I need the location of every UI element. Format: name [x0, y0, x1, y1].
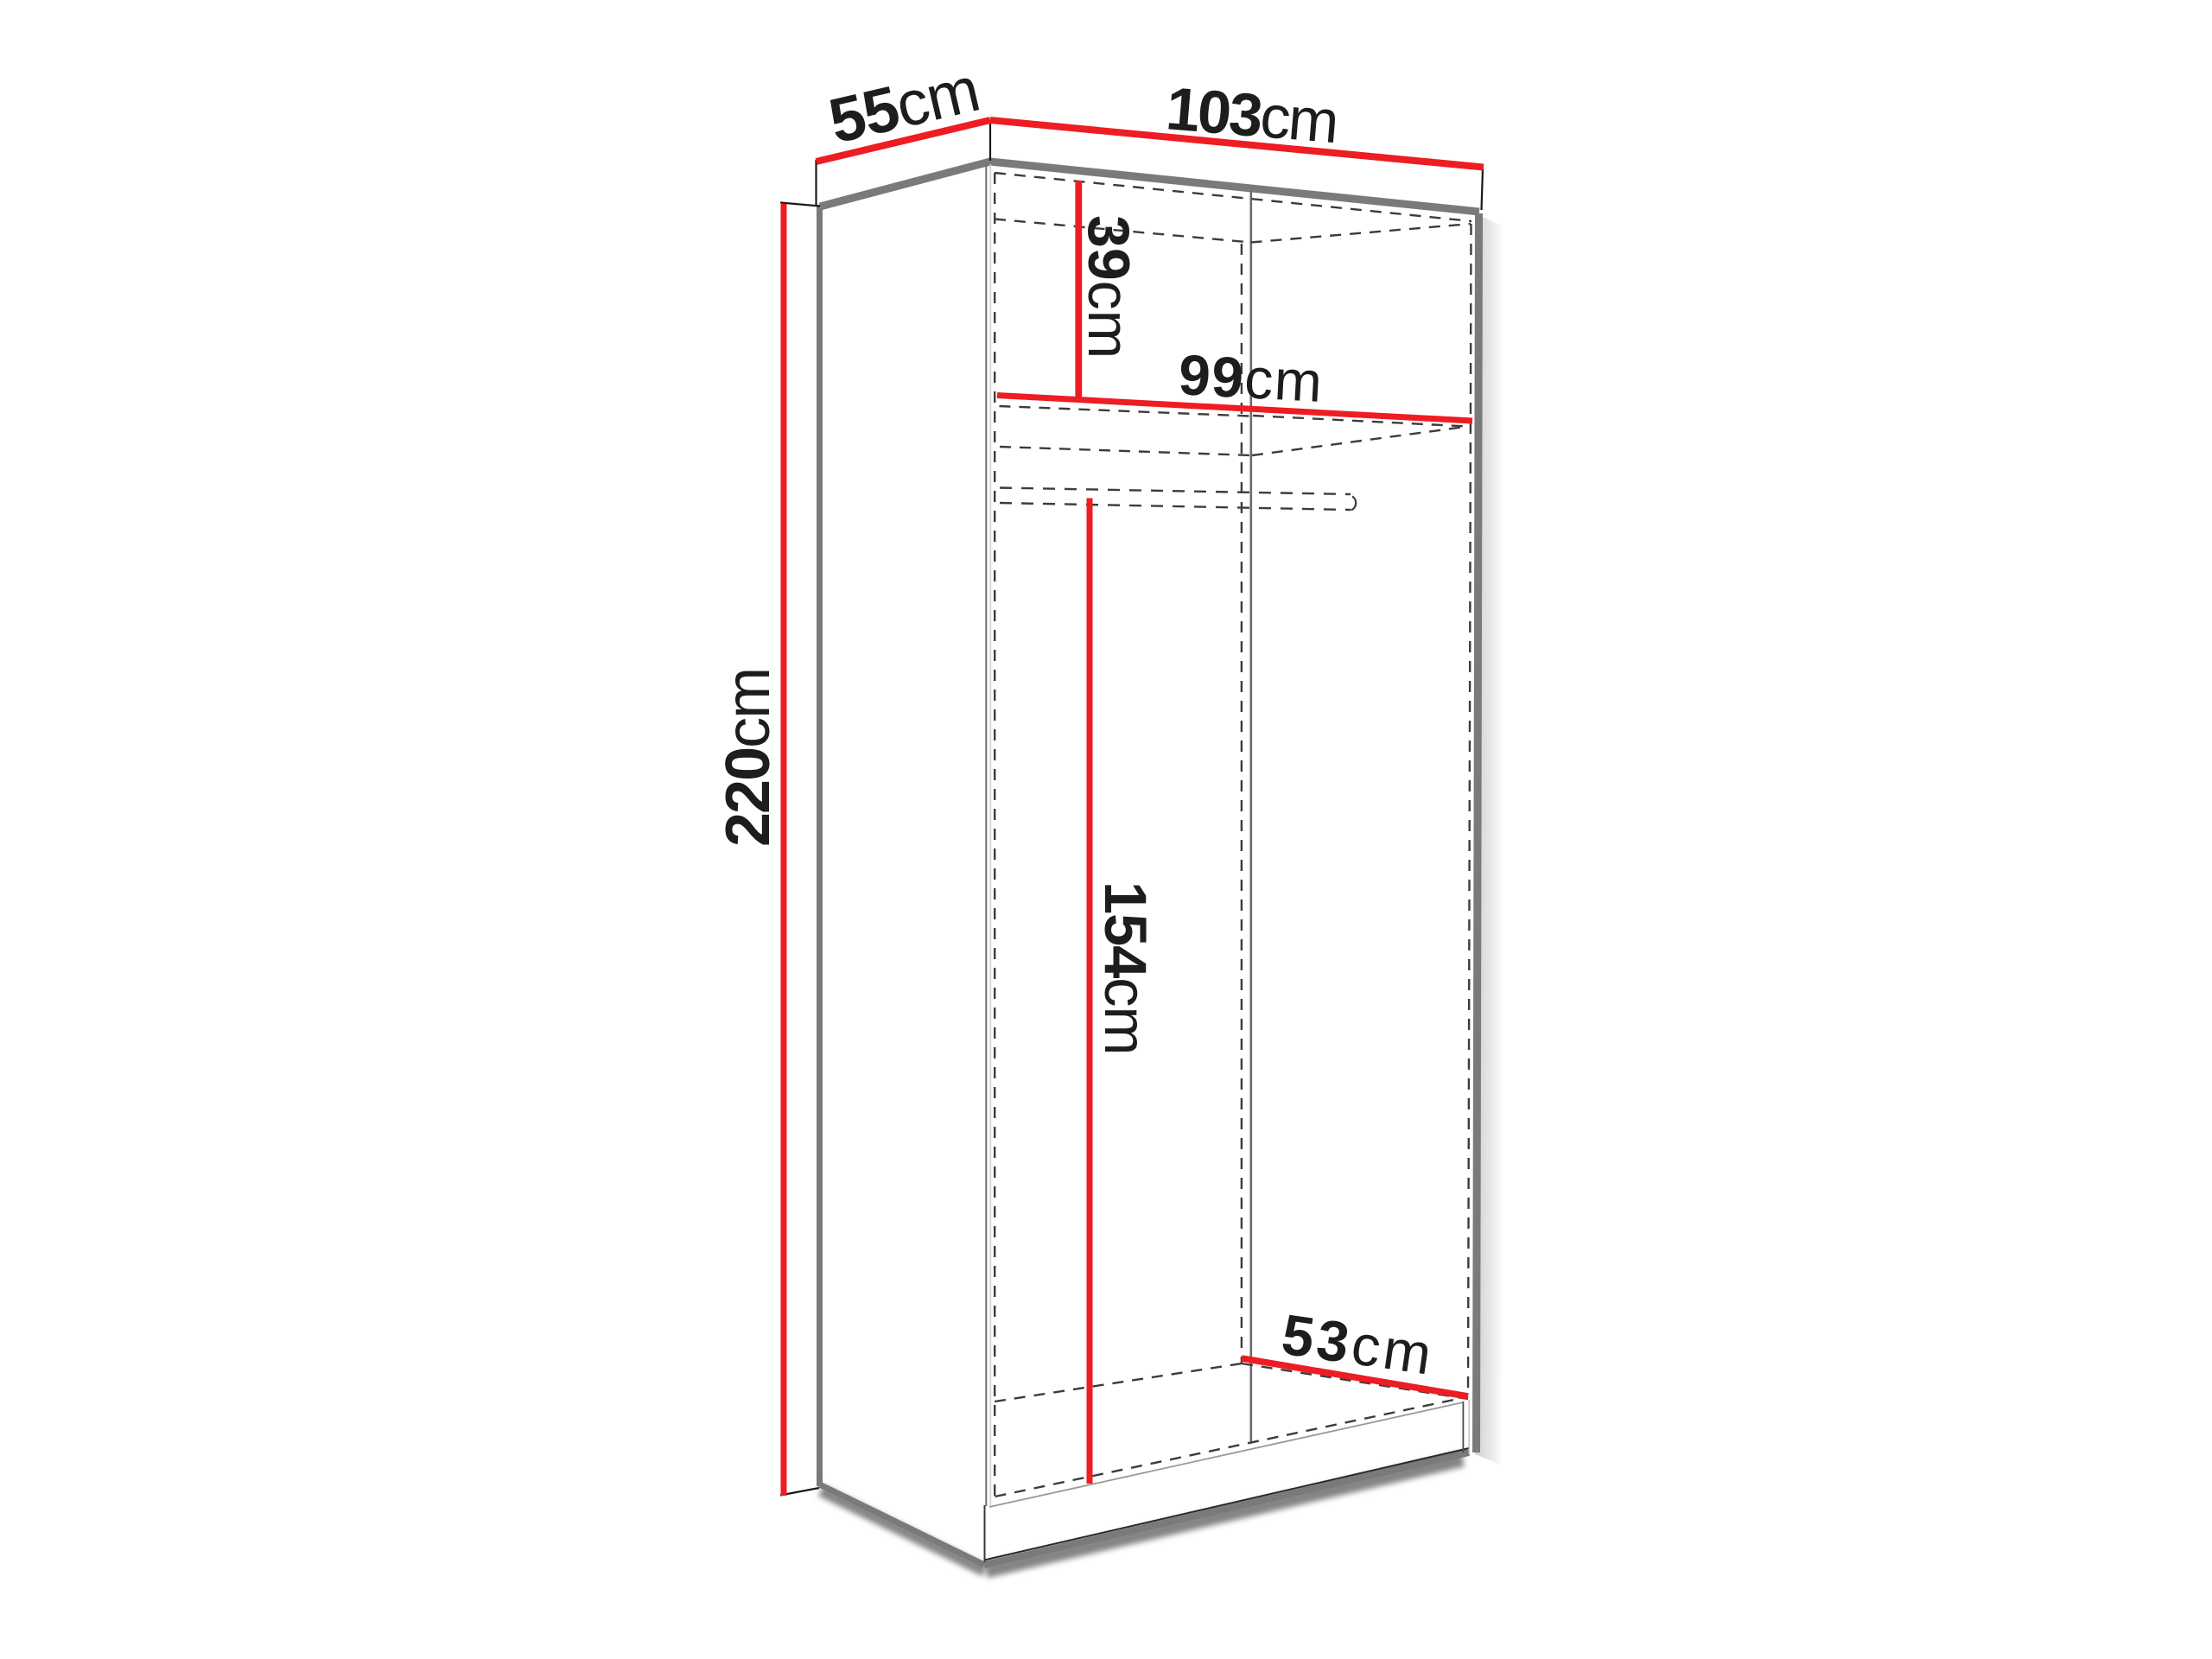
svg-text:99cm: 99cm	[1177, 342, 1325, 414]
svg-text:220cm: 220cm	[714, 669, 783, 847]
svg-text:154cm: 154cm	[1092, 881, 1159, 1055]
svg-text:39cm: 39cm	[1076, 215, 1141, 359]
svg-text:103cm: 103cm	[1164, 74, 1339, 156]
